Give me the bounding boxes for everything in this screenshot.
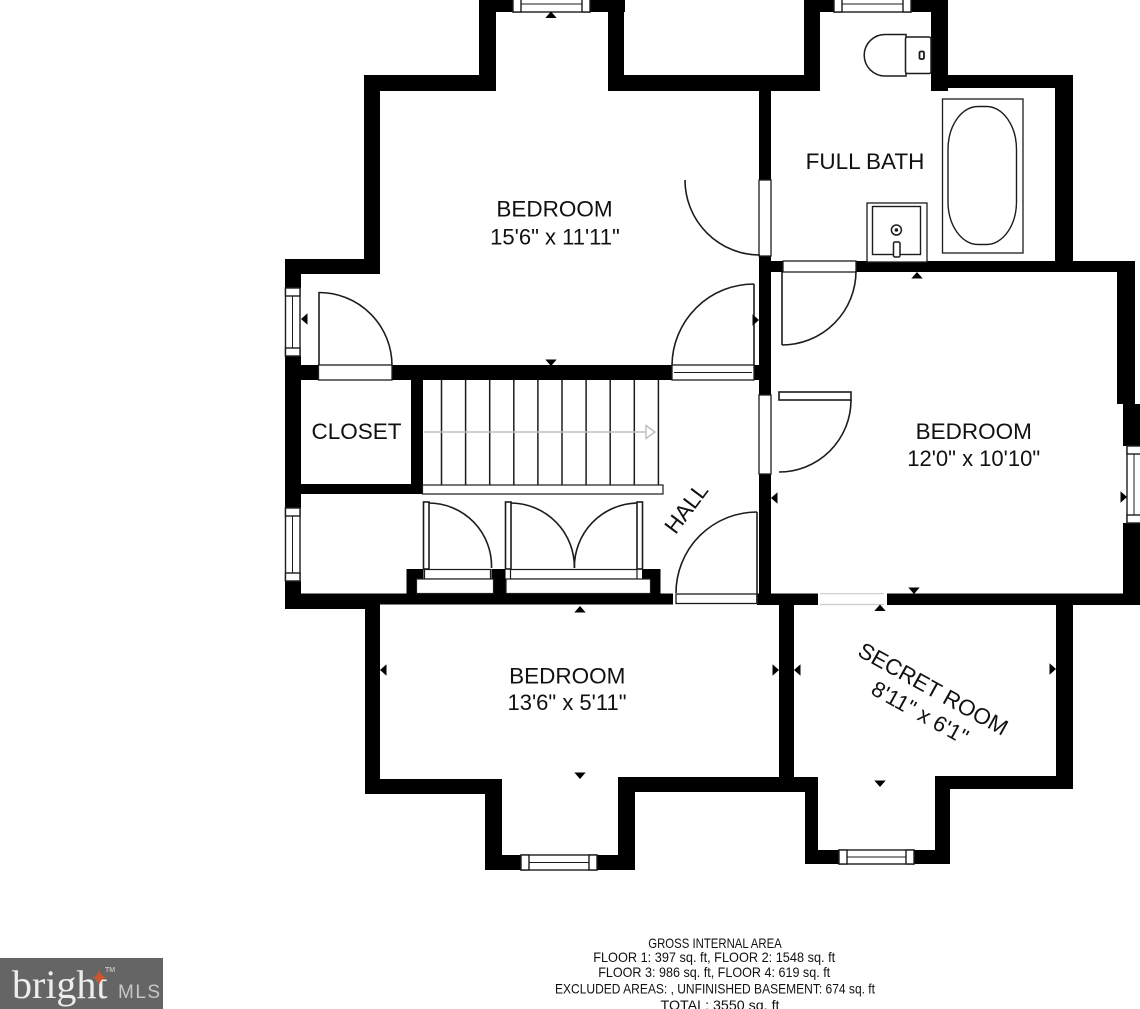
svg-text:TM: TM bbox=[105, 967, 115, 974]
svg-text:bright: bright bbox=[12, 962, 108, 1007]
svg-text:MLS: MLS bbox=[118, 982, 162, 1003]
svg-text:TOTAL: 3550 sq. ft: TOTAL: 3550 sq. ft bbox=[661, 997, 780, 1009]
svg-text:FLOOR 1: 397 sq. ft, FLOOR 2:: FLOOR 1: 397 sq. ft, FLOOR 2: 1548 sq. f… bbox=[593, 949, 835, 965]
svg-text:FULL BATH: FULL BATH bbox=[806, 149, 925, 174]
svg-text:BEDROOM: BEDROOM bbox=[509, 664, 625, 689]
svg-text:12'0" x 10'10": 12'0" x 10'10" bbox=[907, 446, 1040, 471]
svg-text:EXCLUDED AREAS: , UNFINISHED B: EXCLUDED AREAS: , UNFINISHED BASEMENT: 6… bbox=[555, 980, 875, 996]
svg-text:13'6" x 5'11": 13'6" x 5'11" bbox=[507, 690, 626, 715]
svg-text:BEDROOM: BEDROOM bbox=[916, 419, 1032, 444]
svg-text:15'6" x 11'11": 15'6" x 11'11" bbox=[490, 225, 620, 250]
svg-text:FLOOR 3: 986 sq. ft, FLOOR 4:: FLOOR 3: 986 sq. ft, FLOOR 4: 619 sq. ft bbox=[598, 964, 830, 980]
svg-text:CLOSET: CLOSET bbox=[311, 419, 401, 444]
svg-text:BEDROOM: BEDROOM bbox=[496, 197, 612, 222]
